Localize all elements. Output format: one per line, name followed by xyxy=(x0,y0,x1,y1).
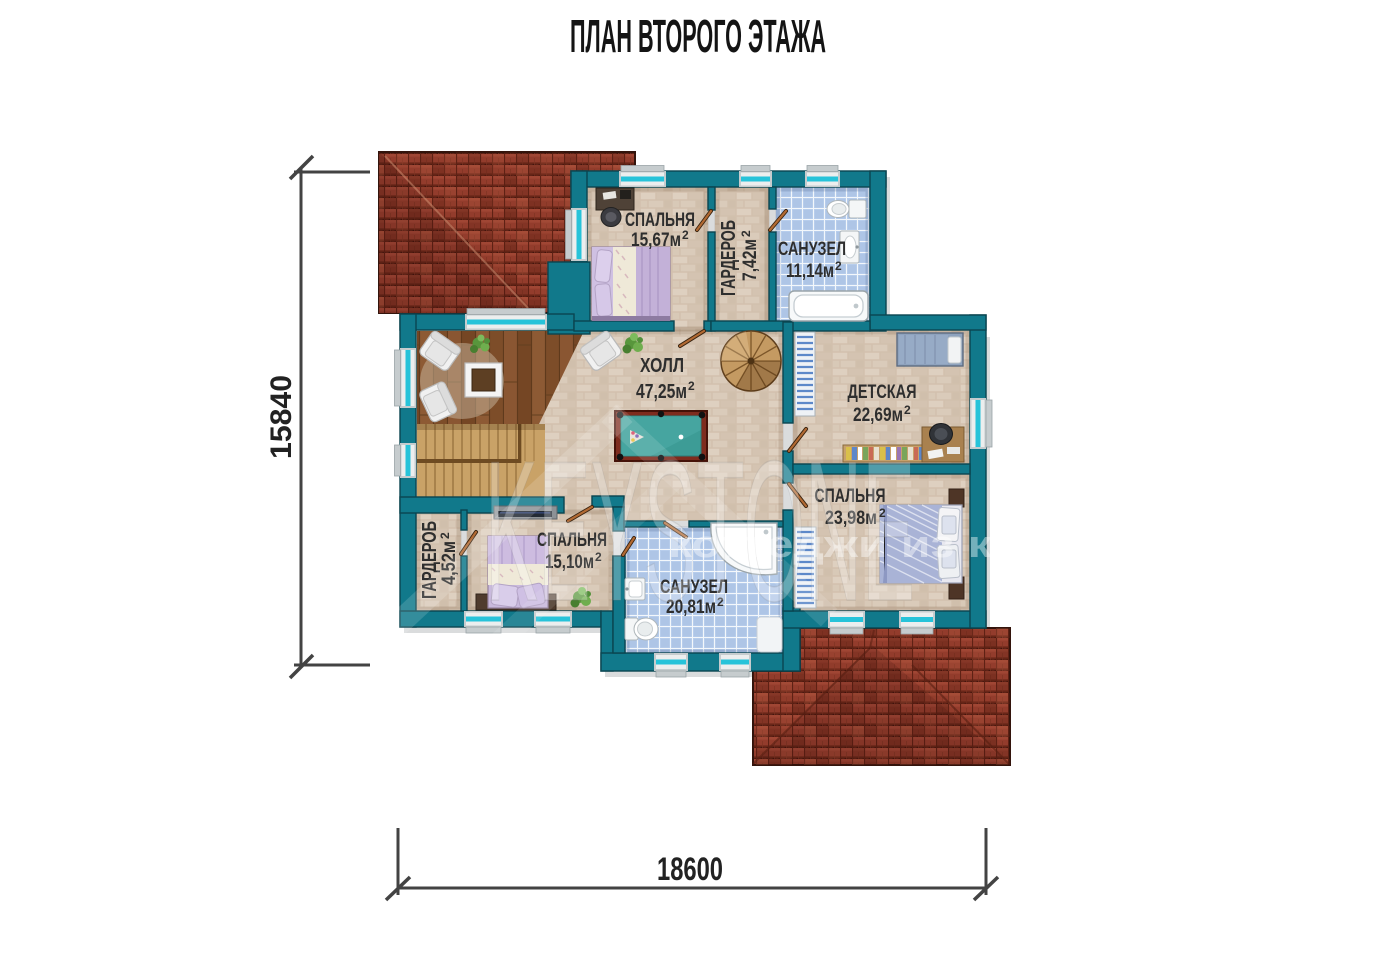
svg-text:ХОЛЛ: ХОЛЛ xyxy=(640,355,684,377)
svg-text:коттеджи из кам: коттеджи из кам xyxy=(668,524,1054,566)
svg-text:ПЛАН ВТОРОГО ЭТАЖА: ПЛАН ВТОРОГО ЭТАЖА xyxy=(570,10,826,62)
svg-text:2: 2 xyxy=(904,403,911,417)
svg-text:ДЕТСКАЯ: ДЕТСКАЯ xyxy=(848,382,917,403)
svg-text:ГАРДЕРОБ: ГАРДЕРОБ xyxy=(718,220,740,296)
svg-text:15,67м: 15,67м xyxy=(631,229,681,251)
svg-text:2: 2 xyxy=(835,259,842,273)
svg-text:2: 2 xyxy=(688,379,695,393)
svg-text:18600: 18600 xyxy=(657,851,723,887)
svg-text:15840: 15840 xyxy=(265,375,298,459)
svg-text:47,25м: 47,25м xyxy=(636,381,687,403)
svg-text:7,42м: 7,42м xyxy=(739,239,761,281)
svg-text:11,14м: 11,14м xyxy=(786,260,834,282)
svg-text:2: 2 xyxy=(739,230,753,237)
svg-text:САНУЗЕЛ: САНУЗЕЛ xyxy=(778,239,846,260)
svg-text:2: 2 xyxy=(682,228,689,242)
svg-text:2: 2 xyxy=(438,532,452,539)
